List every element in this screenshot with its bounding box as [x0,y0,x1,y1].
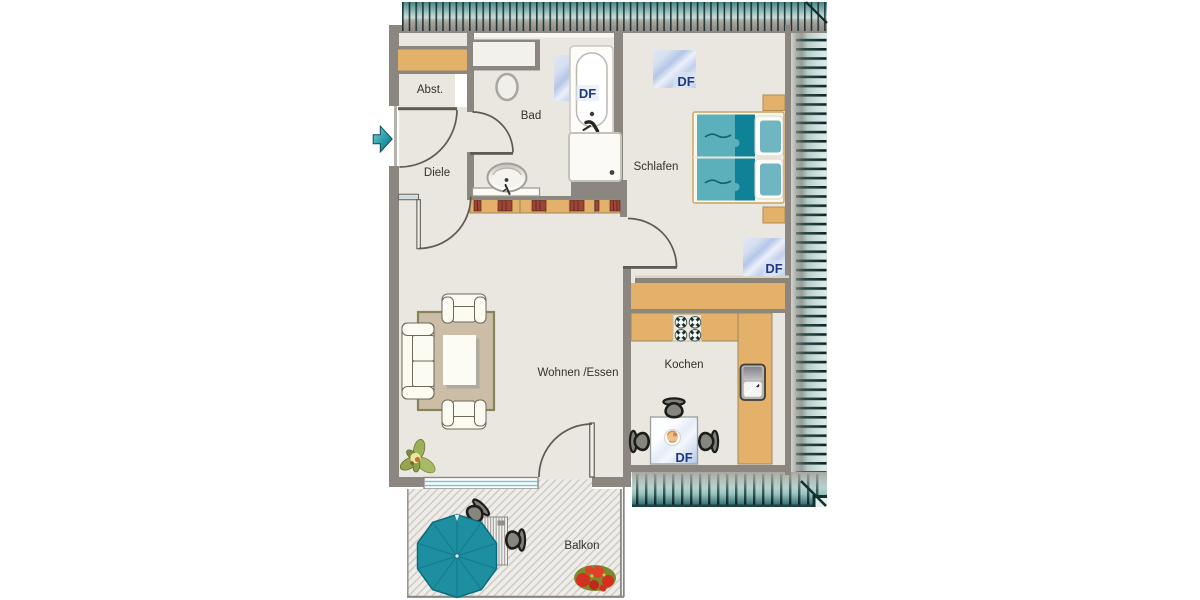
svg-text:Wohnen /Essen: Wohnen /Essen [538,367,619,379]
svg-text:Kochen: Kochen [664,359,703,371]
svg-text:Diele: Diele [424,167,450,179]
svg-text:Schlafen: Schlafen [634,161,679,173]
svg-text:Bad: Bad [521,110,541,122]
svg-text:DF: DF [579,86,596,101]
svg-text:Abst.: Abst. [417,84,443,96]
svg-text:DF: DF [765,261,782,276]
svg-text:DF: DF [677,74,694,89]
svg-text:Balkon: Balkon [564,540,599,552]
svg-text:DF: DF [675,450,692,465]
